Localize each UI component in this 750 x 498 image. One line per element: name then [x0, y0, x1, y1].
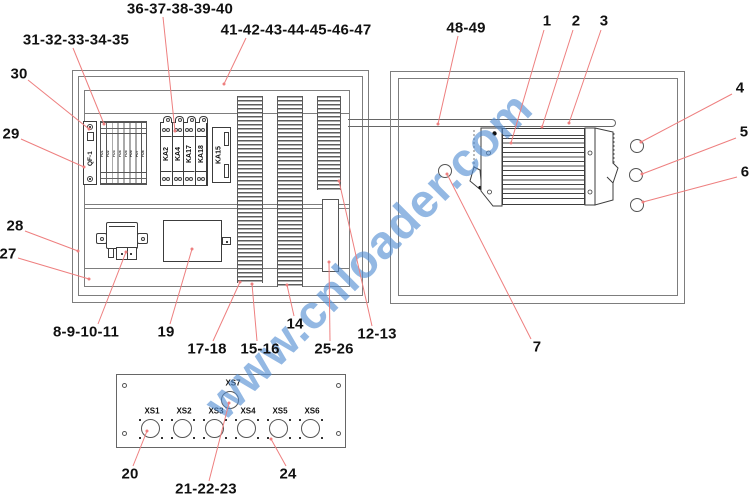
grommet-hole-6	[630, 198, 644, 212]
controller-box	[163, 220, 222, 262]
callout-label-41-42-43-44-45-46-47: 41-42-43-44-45-46-47	[221, 22, 372, 39]
relay-screws	[196, 123, 207, 136]
cooler-fins	[503, 138, 584, 199]
callout-label-3: 3	[600, 13, 609, 30]
relay-label: KA2	[161, 136, 172, 172]
callout-label-1: 1	[543, 13, 552, 30]
relay-ka17: KA17	[184, 123, 196, 185]
fuse-label: FU2	[107, 138, 113, 170]
callout-label-30: 30	[10, 66, 27, 83]
connector-xs3	[205, 419, 224, 438]
relay-screws	[173, 172, 184, 185]
relay-mount-tab	[163, 116, 172, 123]
relay-mount-tab	[187, 116, 196, 123]
screw-icon	[87, 124, 93, 130]
grommet-hole-4	[630, 139, 644, 153]
connector-label-xs1: XS1	[144, 407, 159, 416]
callout-label-27: 27	[0, 246, 17, 263]
callout-label-31-32-33-34-35: 31-32-33-34-35	[23, 32, 129, 49]
callout-label-12-13: 12-13	[357, 326, 396, 343]
callout-label-7: 7	[533, 339, 542, 356]
terminal-dot-icon	[130, 253, 132, 255]
callout-label-21-22-23: 21-22-23	[175, 481, 237, 498]
relay-mount-tab	[199, 116, 208, 123]
callout-label-5: 5	[740, 124, 749, 141]
relay-label: KA18	[196, 136, 207, 172]
callout-label-29: 29	[2, 126, 19, 143]
screw-icon	[87, 176, 93, 182]
relay-leg	[108, 248, 114, 258]
side-channel-cover	[322, 199, 339, 272]
connector-xs1	[141, 419, 160, 438]
connector-corner-dots	[299, 419, 301, 421]
fuse-strip-top-terminals	[101, 122, 146, 134]
callout-label-2: 2	[572, 13, 581, 30]
wiring-duct-2	[277, 96, 303, 287]
connector-label-xs6: XS6	[304, 407, 319, 416]
fin-top-band-line	[503, 135, 584, 136]
connector-xs7	[221, 391, 239, 409]
fuse-label: FU8	[142, 138, 148, 170]
relay-ka2: KA2	[161, 123, 173, 185]
relay-label: KA4	[173, 136, 184, 172]
mount-ear-right	[137, 233, 148, 244]
panel-mount-hole-icon	[336, 383, 341, 388]
connector-label-xs5: XS5	[272, 407, 287, 416]
connector-corner-dots	[171, 419, 173, 421]
connector-xs4	[237, 419, 256, 438]
connector-corner-dots	[203, 419, 205, 421]
callout-label-20: 20	[121, 466, 138, 483]
plate-divider-line	[84, 113, 350, 114]
callout-label-14: 14	[286, 316, 303, 333]
relay-ka15: KA15	[212, 127, 231, 183]
connector-label-xs4: XS4	[240, 407, 255, 416]
finned-cooler-core	[502, 128, 585, 205]
callout-label-15-16: 15-16	[240, 341, 279, 358]
callout-label-48-49: 48-49	[446, 20, 485, 37]
circuit-breaker: QF-1	[83, 121, 97, 185]
panel-mount-hole-icon	[122, 383, 127, 388]
fuse-terminal-strip: FU1FU2FU3FU4FU5FU6FU7FU8	[100, 121, 147, 185]
controller-box-tab	[222, 237, 231, 245]
relay-terminal-icon	[224, 164, 229, 178]
connector-xs5	[269, 419, 288, 438]
callout-label-4: 4	[736, 80, 745, 97]
relay-screws	[173, 123, 184, 136]
relay-block: KA2KA4KA17KA18	[160, 122, 208, 186]
relay-screws	[161, 123, 172, 136]
plate-divider-line	[84, 204, 350, 205]
panel-mount-hole-icon	[336, 431, 341, 436]
relay-terminal-icon	[224, 132, 229, 146]
relay-mount-tab	[175, 116, 184, 123]
relay-screws	[184, 123, 195, 136]
relay-terminal-box	[116, 247, 137, 260]
mount-hole-icon	[100, 237, 104, 241]
relay-ka4: KA4	[173, 123, 185, 185]
relay-screws	[161, 172, 172, 185]
wiring-duct-3	[317, 96, 341, 190]
relay-screws	[184, 172, 195, 185]
grommet-hole-5	[629, 168, 643, 182]
connector-panel: XS7 XS1XS2XS3XS4XS5XS6	[116, 374, 346, 448]
callout-label-8-9-10-11: 8-9-10-11	[53, 324, 119, 341]
callout-label-24: 24	[279, 466, 296, 483]
callout-label-36-37-38-39-40: 36-37-38-39-40	[127, 1, 233, 18]
connector-xs7-label: XS7	[225, 379, 240, 388]
relay-label: KA17	[184, 136, 195, 172]
terminal-dot-icon	[121, 253, 123, 255]
connector-xs6	[301, 419, 320, 438]
callout-label-6: 6	[741, 164, 750, 181]
connector-corner-dots	[267, 419, 269, 421]
callout-label-25-26: 25-26	[314, 341, 353, 358]
plate-divider-line	[84, 268, 350, 269]
connector-corner-dots	[235, 419, 237, 421]
relay-body-line	[109, 226, 135, 227]
callout-label-28: 28	[6, 218, 23, 235]
tab-dot-icon	[226, 241, 228, 243]
fuse-label: FU4	[119, 138, 125, 170]
callout-label-19: 19	[157, 324, 174, 341]
panel-mount-hole-icon	[122, 431, 127, 436]
connector-label-xs3: XS3	[208, 407, 223, 416]
grommet-hole-7	[438, 164, 452, 178]
flasher-relay-body	[106, 222, 138, 249]
relay-screws	[196, 172, 207, 185]
wiring-duct-1	[237, 96, 263, 283]
fuse-strip-bottom-terminals	[101, 172, 146, 184]
callout-label-17-18: 17-18	[187, 341, 226, 358]
parts-diagram: QF-1 FU1FU2FU3FU4FU5FU6FU7FU8 KA2KA4KA17…	[0, 0, 750, 498]
terminal-divider	[127, 248, 128, 259]
mount-hole-icon	[141, 237, 145, 241]
fuse-bodies: FU1FU2FU3FU4FU5FU6FU7FU8	[101, 134, 146, 174]
fuse-label: FU3	[113, 138, 119, 170]
connector-corner-dots	[139, 419, 141, 421]
connector-label-xs2: XS2	[176, 407, 191, 416]
connector-xs2	[173, 419, 192, 438]
relay-ka18: KA18	[196, 123, 208, 185]
breaker-switch-icon	[87, 132, 94, 141]
plate-divider-line	[84, 208, 350, 209]
breaker-label: QF-1	[87, 141, 94, 176]
